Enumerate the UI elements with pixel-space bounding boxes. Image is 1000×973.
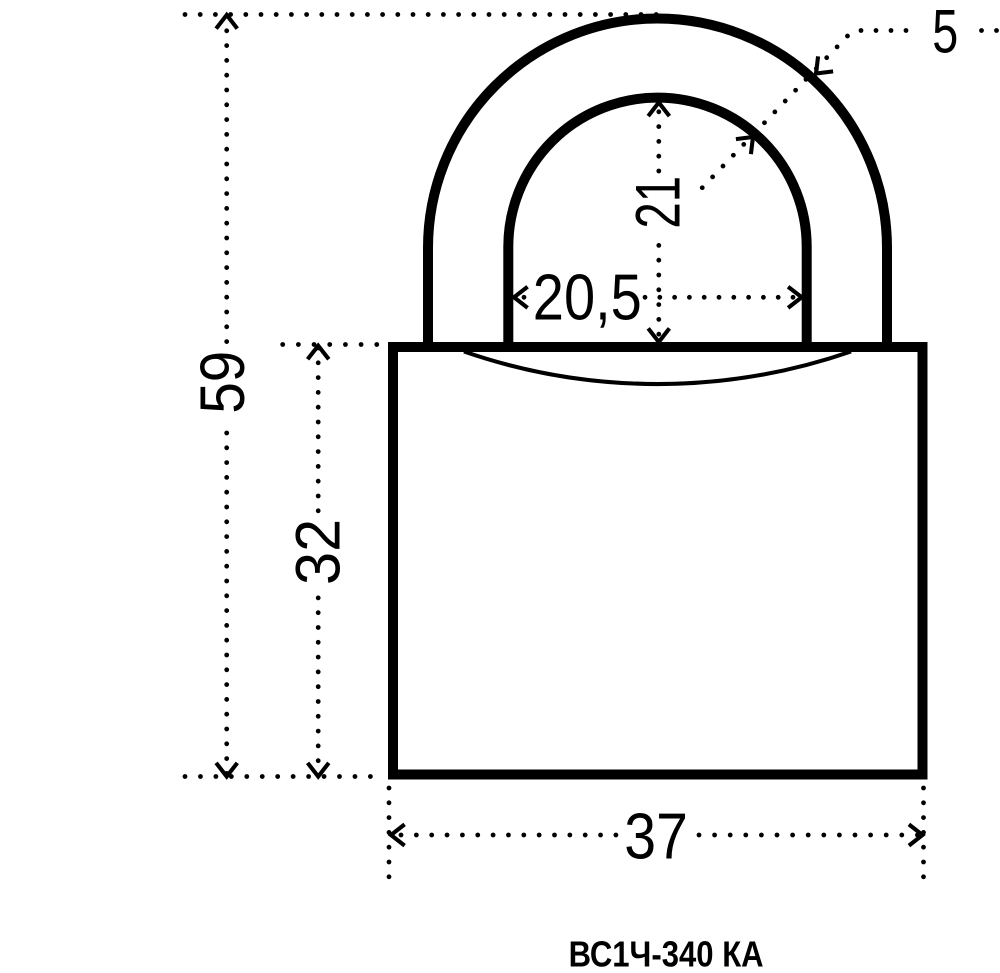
- svg-text:32: 32: [283, 519, 353, 585]
- svg-text:20,5: 20,5: [533, 261, 642, 333]
- svg-text:59: 59: [188, 351, 258, 414]
- svg-text:ВС1Ч-340 КА: ВС1Ч-340 КА: [569, 933, 764, 973]
- svg-text:21: 21: [623, 176, 693, 229]
- svg-text:5: 5: [932, 0, 958, 66]
- svg-text:37: 37: [624, 799, 688, 872]
